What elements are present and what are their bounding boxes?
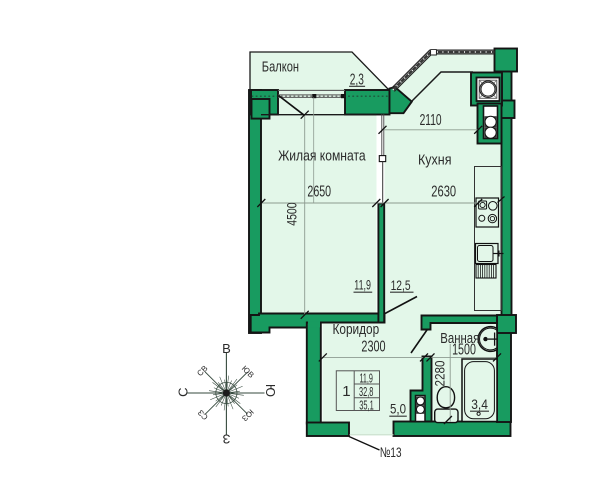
svg-text:35,1: 35,1 — [359, 398, 373, 412]
svg-text:Кухня: Кухня — [418, 151, 452, 168]
svg-text:№13: №13 — [380, 444, 402, 460]
svg-text:Коридор: Коридор — [333, 321, 380, 338]
svg-text:2650: 2650 — [307, 184, 331, 201]
svg-text:12,5: 12,5 — [391, 277, 411, 293]
svg-text:З: З — [222, 432, 230, 447]
svg-text:1: 1 — [342, 383, 350, 400]
svg-text:Ю: Ю — [263, 384, 278, 397]
svg-text:2300: 2300 — [361, 338, 385, 355]
svg-text:В: В — [222, 341, 231, 356]
svg-text:11,9: 11,9 — [354, 277, 371, 293]
svg-text:11,9: 11,9 — [359, 372, 373, 386]
svg-text:2110: 2110 — [420, 112, 442, 129]
svg-text:32,8: 32,8 — [359, 385, 373, 399]
svg-text:2630: 2630 — [431, 184, 456, 201]
svg-text:1500: 1500 — [452, 342, 476, 359]
svg-text:С: С — [175, 388, 190, 397]
svg-text:5,0: 5,0 — [390, 401, 406, 417]
svg-text:3,4: 3,4 — [471, 396, 488, 412]
svg-text:Балкон: Балкон — [262, 59, 299, 76]
svg-text:Жилая комната: Жилая комната — [278, 148, 366, 165]
svg-text:4500: 4500 — [284, 203, 299, 226]
svg-text:2280: 2280 — [432, 361, 447, 387]
